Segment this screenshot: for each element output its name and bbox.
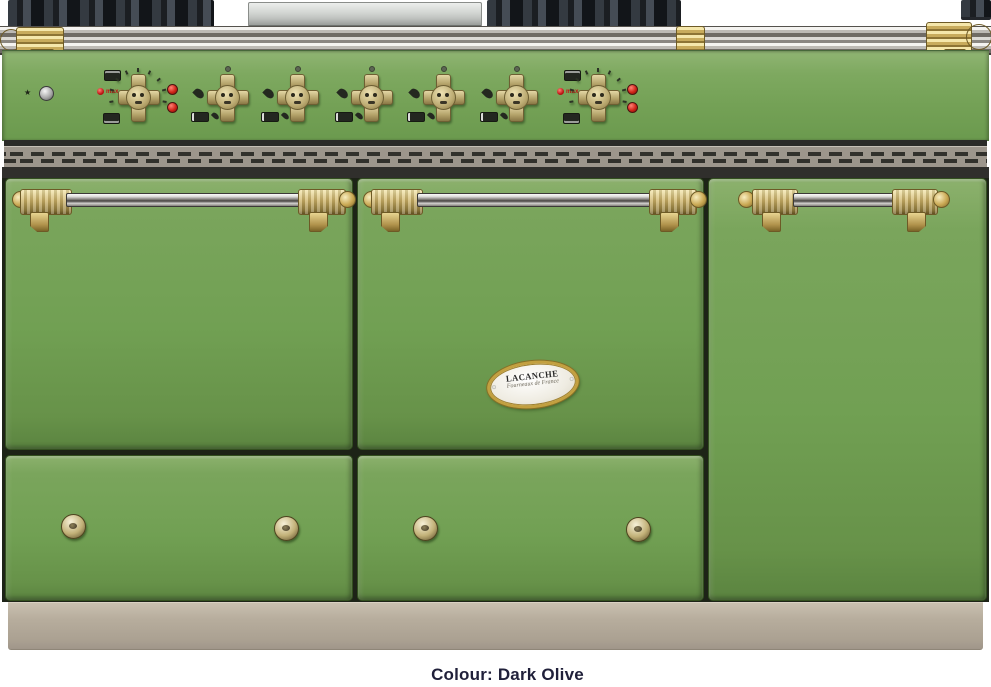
knob-detail <box>445 93 449 97</box>
left-oven-thermostat-knob <box>118 74 158 120</box>
handle-hook <box>381 212 400 232</box>
knob-detail <box>294 101 301 104</box>
knob-detail <box>291 93 295 97</box>
right-cupboard-door <box>708 178 987 601</box>
alignment-dot <box>369 66 375 72</box>
handle-mount-right <box>892 189 938 215</box>
handle-mount-left <box>752 189 798 215</box>
alignment-dot <box>514 66 520 72</box>
red-indicator-light <box>167 102 178 113</box>
control-panel: ★ maxmax <box>2 50 989 141</box>
door-handle <box>417 193 655 207</box>
dial-tick <box>622 100 626 103</box>
product-photo-dark-olive-range[interactable]: ★ maxmax <box>0 0 991 687</box>
knob-centre <box>215 85 240 110</box>
handle-ball <box>339 191 356 208</box>
cast-iron-grate-corner <box>961 0 991 20</box>
alignment-dot <box>225 66 231 72</box>
knob-detail <box>518 93 522 97</box>
dial-tick <box>569 100 573 103</box>
door-handle <box>793 193 897 207</box>
knob-centre <box>431 85 456 110</box>
burner-control-knob-5 <box>496 74 536 120</box>
knob-detail <box>224 101 231 104</box>
dial-tick <box>575 78 579 82</box>
dial-tick <box>137 68 139 72</box>
burner-control-knob-4 <box>423 74 463 120</box>
flame-icon <box>336 87 349 100</box>
handle-hook <box>309 212 328 232</box>
handle-mount-left <box>371 189 423 215</box>
drawer-knob <box>626 517 651 542</box>
alignment-dot <box>441 66 447 72</box>
door-handle <box>66 193 304 207</box>
dial-tick <box>597 68 599 72</box>
towel-rail-right-ball <box>966 24 991 50</box>
knob-detail <box>595 101 602 104</box>
handle-mount-left <box>20 189 72 215</box>
middle-storage-drawer <box>357 455 704 601</box>
knob-detail <box>440 101 447 104</box>
red-indicator-light <box>167 84 178 95</box>
vent-grille <box>4 146 987 168</box>
right-oven-thermostat-knob <box>578 74 618 120</box>
handle-hook <box>30 212 49 232</box>
knob-detail <box>510 93 514 97</box>
plinth-base <box>8 602 983 650</box>
dial-tick <box>617 78 621 82</box>
range-cooker: ★ maxmax <box>0 0 991 650</box>
knob-detail <box>373 93 377 97</box>
knob-centre <box>504 85 529 110</box>
drawer-knob <box>274 516 299 541</box>
dial-tick <box>585 70 589 74</box>
middle-oven-door: LACANCHE Fourneaux de France <box>357 178 704 450</box>
dial-tick <box>125 70 129 74</box>
knob-detail <box>299 93 303 97</box>
knob-centre <box>586 85 611 110</box>
oven-bay: LACANCHE Fourneaux de France <box>2 178 989 602</box>
burner-control-knob-3 <box>351 74 391 120</box>
max-setting-icon <box>97 88 104 95</box>
flame-icon <box>481 87 494 100</box>
handle-ball <box>933 191 950 208</box>
alignment-dot <box>295 66 301 72</box>
dial-tick <box>109 100 113 103</box>
dial-tick <box>622 89 626 92</box>
vent-bottom-band <box>2 167 989 178</box>
red-indicator-light <box>627 102 638 113</box>
knob-centre <box>126 85 151 110</box>
handle-hook <box>660 212 679 232</box>
dial-tick <box>115 78 119 82</box>
handle-ball <box>690 191 707 208</box>
max-setting-icon <box>557 88 564 95</box>
knob-detail <box>600 93 604 97</box>
drawer-knob <box>413 516 438 541</box>
knob-detail <box>365 93 369 97</box>
dial-tick <box>162 89 166 92</box>
colour-caption: Colour: Dark Olive <box>12 665 991 685</box>
dial-tick <box>162 100 166 103</box>
knob-detail <box>221 93 225 97</box>
knob-detail <box>437 93 441 97</box>
handle-hook <box>762 212 781 232</box>
knob-detail <box>140 93 144 97</box>
handle-hook <box>907 212 926 232</box>
flame-icon <box>262 87 275 100</box>
flame-icon <box>408 87 421 100</box>
dial-tick <box>608 70 612 74</box>
dial-tick <box>157 78 161 82</box>
drawer-knob <box>61 514 86 539</box>
flame-icon <box>192 87 205 100</box>
burner-control-knob-1 <box>207 74 247 120</box>
knob-centre <box>285 85 310 110</box>
knob-detail <box>135 101 142 104</box>
red-indicator-light <box>627 84 638 95</box>
knob-centre <box>359 85 384 110</box>
simmer-plate <box>248 2 482 29</box>
lacanche-badge: LACANCHE Fourneaux de France <box>485 356 581 412</box>
left-storage-drawer <box>5 455 353 601</box>
knob-detail <box>132 93 136 97</box>
knob-detail <box>368 101 375 104</box>
dial-tick <box>148 70 152 74</box>
knob-detail <box>592 93 596 97</box>
knob-detail <box>229 93 233 97</box>
burner-control-knob-2 <box>277 74 317 120</box>
left-oven-door <box>5 178 353 450</box>
knob-detail <box>513 101 520 104</box>
